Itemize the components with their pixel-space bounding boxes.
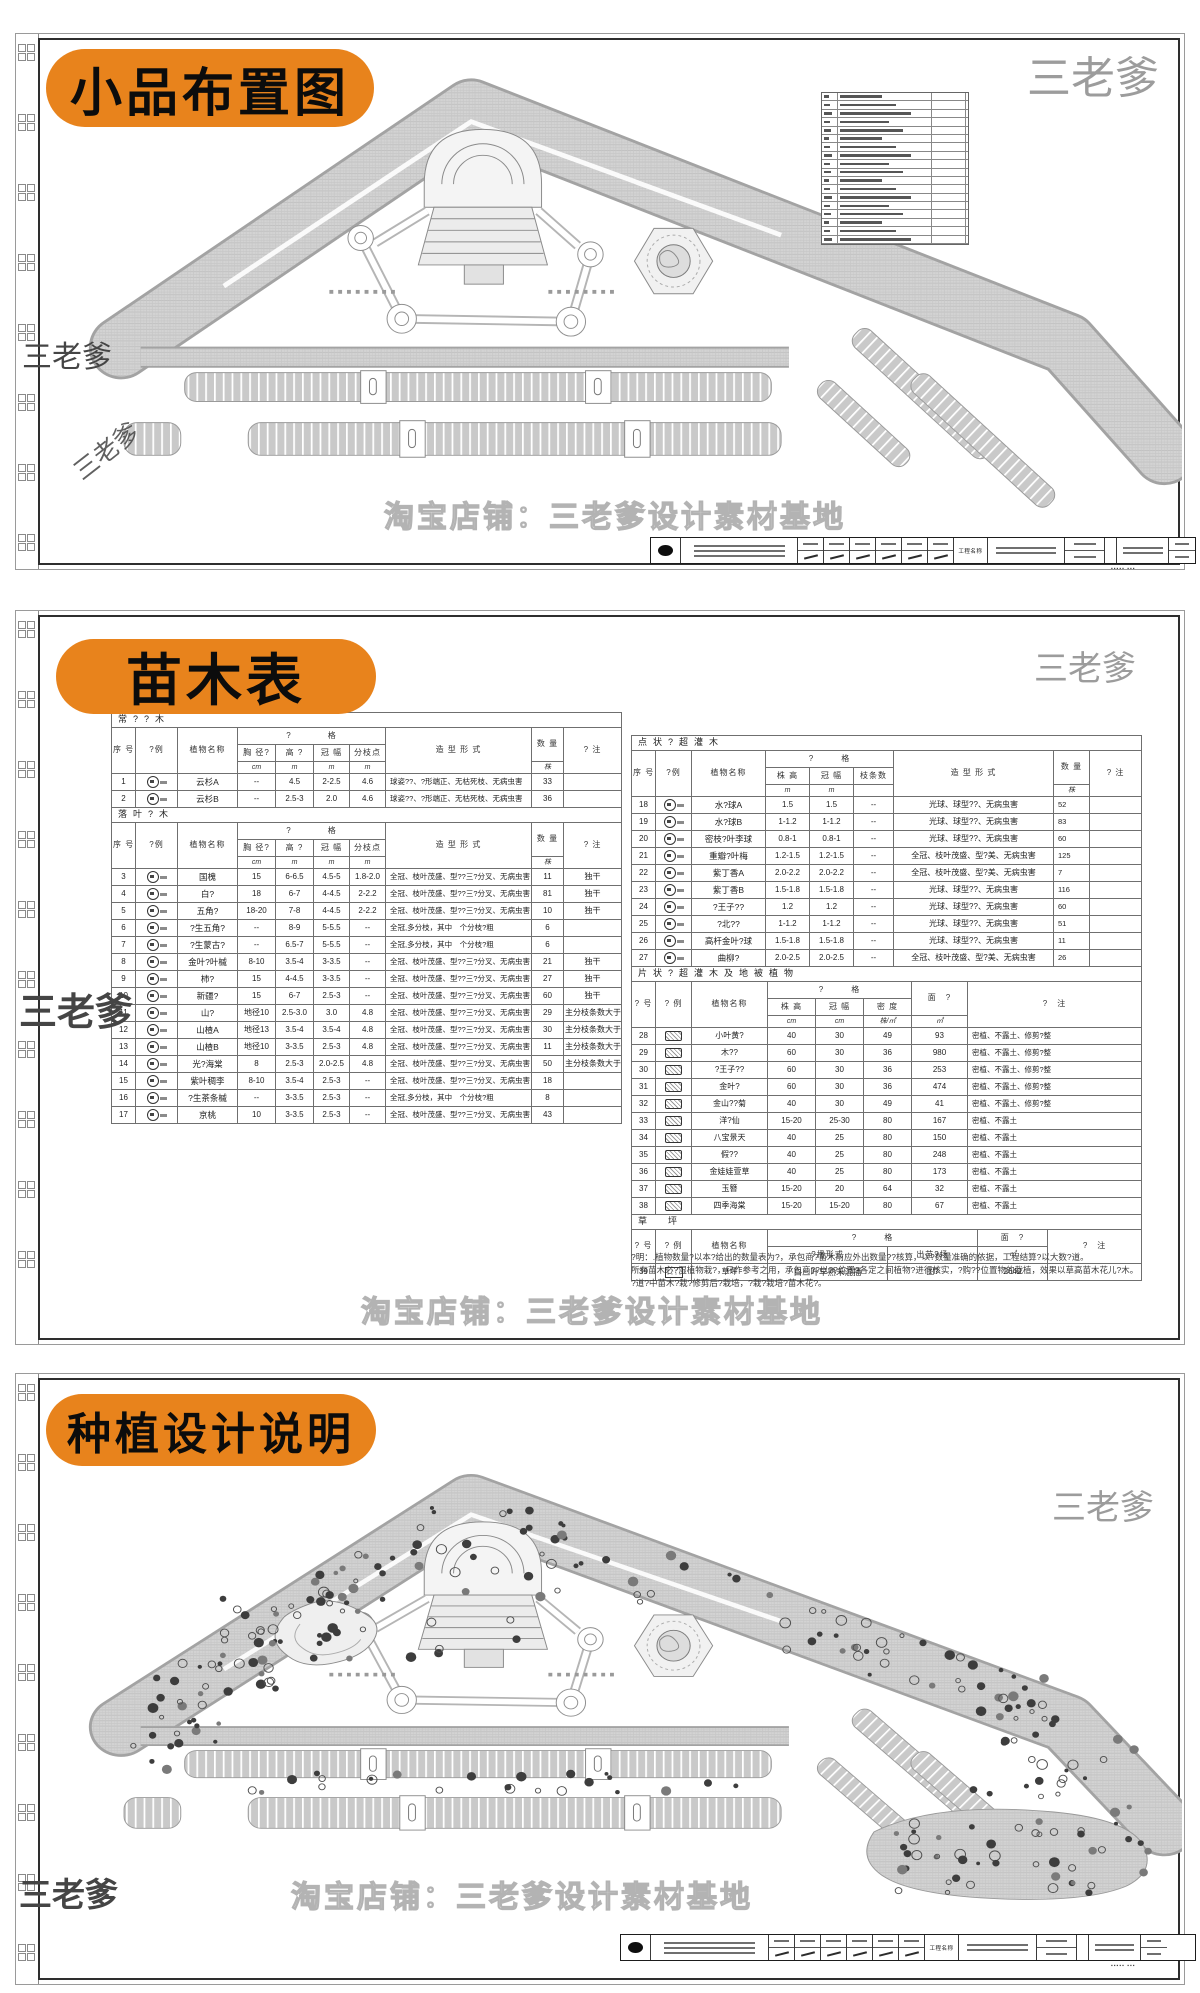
column-header: 造 型 形 式 (894, 751, 1054, 797)
project-info-cell (1117, 538, 1169, 563)
tree-symbol (566, 1770, 575, 1778)
blank-cell (1105, 538, 1117, 563)
brand-watermark: 三老爹 (1052, 1480, 1154, 1529)
table-cell: -- (854, 933, 894, 950)
table-cell: 2.0-2.5 (766, 950, 810, 967)
table-row: 8金叶?叶槭8-103.5-43-3.5--全冠、枝叶茂盛、型??三?分叉、无病… (112, 954, 622, 971)
table-row: 15紫叶稠李8-103.5-42.5-3--全冠、枝叶茂盛、型??三?分叉、无病… (112, 1073, 622, 1090)
tree-symbol (319, 1784, 325, 1790)
table-row: 13山楂B地径103-3.52.5-34.8全冠、枝叶茂盛、型??三?分叉、无病… (112, 1039, 622, 1056)
table-cell: 4-4.5 (276, 971, 314, 988)
table-row: 16?生茶条槭--3-3.52.5-3--全冠,多分枝，其中 个分枝?粗8 (112, 1090, 622, 1107)
margin-cell (18, 184, 26, 192)
table-cell: 21 (632, 848, 656, 865)
table-cell: 3.5-4 (276, 1022, 314, 1039)
tree-symbol (259, 1671, 265, 1676)
table-cell: 6 (112, 920, 136, 937)
tree-symbol (314, 1771, 320, 1777)
tree-symbol (333, 1571, 338, 1575)
table-cell: ?王子?? (692, 1062, 768, 1079)
column-header: 面 ? (978, 1230, 1048, 1247)
tree-symbol (1008, 1691, 1019, 1701)
margin-cell (18, 1190, 26, 1198)
table-cell: ?生蒙古? (178, 937, 238, 954)
legend-row (822, 219, 968, 227)
shop-watermark: 淘宝店铺：三老爹设计素材基地 (384, 492, 846, 536)
margin-cell (18, 123, 26, 131)
table-cell: 主分枝条数大于3 (564, 1039, 622, 1056)
brand-watermark: 三老爹 (1034, 641, 1136, 690)
section-title: 草 坪 (632, 1215, 1142, 1230)
margin-cell (27, 1813, 35, 1821)
table-cell: 4.8 (350, 1005, 386, 1022)
table-cell: 3.0 (314, 1005, 350, 1022)
tree-symbol (897, 1865, 907, 1875)
margin-cell (18, 700, 26, 708)
legend-cell (822, 227, 838, 234)
tree-symbol (996, 1713, 1004, 1720)
legend-cell (838, 118, 932, 125)
legend-cell (822, 160, 838, 167)
tree-symbol (992, 1860, 999, 1867)
nursery-table-section: 常??木序 号?例植物名称? 格造 型 形 式数 量? 注胸 径?高 ?冠 幅分… (111, 712, 622, 808)
table-cell: -- (350, 920, 386, 937)
table-cell: 3-3.5 (276, 1107, 314, 1124)
table-cell: 3-3.5 (276, 1039, 314, 1056)
project-info-cell (1089, 1935, 1141, 1960)
table-cell: -- (854, 814, 894, 831)
margin-cell (27, 630, 35, 638)
plant-symbol-icon (136, 1039, 178, 1056)
table-cell: 3 (112, 869, 136, 886)
legend-cell (822, 118, 838, 125)
table-cell (1090, 950, 1142, 967)
table-cell: 27 (632, 950, 656, 967)
table-cell: 全冠、枝叶茂盛、型??三?分叉、无病虫害 (386, 988, 532, 1005)
table-row: 1云杉A--4.52-2.54.6球姿??、?形端正、无枯死枝、无病虫害33 (112, 774, 622, 791)
margin-cell (18, 324, 26, 332)
column-header: ? 注 (564, 823, 622, 869)
margin-cell (18, 1454, 26, 1462)
legend-cell (932, 118, 966, 125)
margin-cell (27, 254, 35, 262)
legend-row (822, 93, 968, 101)
legend-cell (932, 227, 966, 234)
table-cell: 27 (532, 971, 564, 988)
table-cell: -- (238, 791, 276, 808)
legend-cell (822, 185, 838, 192)
table-cell: 6 (532, 920, 564, 937)
tree-symbol (1085, 1889, 1092, 1896)
table-cell: 2 (112, 791, 136, 808)
column-header: 株 (532, 857, 564, 869)
tree-symbol (432, 1510, 436, 1514)
table-cell: 3-3.5 (314, 971, 350, 988)
table-cell (1090, 797, 1142, 814)
legend-cell (838, 227, 932, 234)
table-cell: 80 (864, 1164, 912, 1181)
table-cell (564, 920, 622, 937)
tree-symbol (311, 1578, 320, 1586)
column-header: 数 量 (532, 728, 564, 762)
tree-symbol (315, 1571, 324, 1579)
column-header: m (350, 857, 386, 869)
table-cell: 15-20 (768, 1181, 816, 1198)
tree-symbol (374, 1563, 381, 1570)
table-cell: 36 (864, 1079, 912, 1096)
tree-symbol (393, 1771, 402, 1779)
table-cell: 67 (912, 1198, 968, 1215)
tree-symbol (1016, 1704, 1021, 1709)
legend-cell (932, 194, 966, 201)
table-cell: 15-20 (816, 1198, 864, 1215)
legend-cell (822, 93, 838, 100)
margin-cell (18, 1743, 26, 1751)
table-cell: 4.5-5 (314, 869, 350, 886)
tree-symbol (911, 1829, 916, 1834)
table-cell: 京桃 (178, 1107, 238, 1124)
table-cell: 密植、不露土 (968, 1164, 1142, 1181)
legend-row (822, 194, 968, 202)
table-row: 32金山??菊40304941密植、不露土、修剪?整 (632, 1096, 1142, 1113)
margin-cell (18, 1111, 26, 1119)
margin-cell (27, 1454, 35, 1462)
margin-cell (18, 53, 26, 61)
column-header: 造 型 形 式 (386, 823, 532, 869)
legend-row (822, 101, 968, 109)
table-cell: 18-20 (238, 903, 276, 920)
table-cell: 35 (632, 1147, 656, 1164)
tree-symbol (1127, 1805, 1132, 1810)
table-row: 33洋?仙15-2025-3080167密植、不露土 (632, 1113, 1142, 1130)
company-name-cell (651, 1935, 769, 1960)
margin-cell (27, 324, 35, 332)
table-row: 24?王子??1.21.2--光球、球型??、无病虫害60 (632, 899, 1142, 916)
margin-cell (27, 1384, 35, 1392)
table-cell: 253 (912, 1062, 968, 1079)
margin-cell (18, 621, 26, 629)
margin-cell (18, 1673, 26, 1681)
table-row: 34八宝景天402580150密植、不露土 (632, 1130, 1142, 1147)
note-line: ?明：.植物数量?以本?给出的数量表为?，承包商?苗木前应外出数量??核算，以?… (631, 1251, 1138, 1264)
margin-cell (18, 770, 26, 778)
tree-symbol (952, 1874, 960, 1882)
column-header: 枝条数 (854, 768, 894, 785)
margin-cell (27, 1111, 35, 1119)
legend-row (822, 152, 968, 160)
groundcover-swatch-icon (656, 1198, 692, 1215)
table-cell: -- (854, 831, 894, 848)
tree-symbol (936, 1835, 941, 1840)
table-cell: 173 (912, 1164, 968, 1181)
shop-watermark: 淘宝店铺：三老爹设计素材基地 (291, 1872, 753, 1916)
margin-cell (27, 263, 35, 271)
margin-cell (18, 901, 26, 909)
table-row: 29木??603036980密植、不露土、修剪?整 (632, 1045, 1142, 1062)
table-cell: 柿? (178, 971, 238, 988)
tree-symbol (986, 1839, 996, 1848)
table-cell: 1.2 (766, 899, 810, 916)
table-cell: 33 (632, 1113, 656, 1130)
table-cell: 22 (632, 865, 656, 882)
tree-symbol (187, 1720, 192, 1725)
tree-symbol (895, 1888, 902, 1894)
tree-symbol (1110, 1808, 1120, 1817)
plant-symbol-icon (656, 950, 692, 967)
column-header: 植物名称 (178, 728, 238, 774)
margin-cell (27, 193, 35, 201)
table-cell: 16 (112, 1090, 136, 1107)
table-cell: 金娃娃萱草 (692, 1164, 768, 1181)
table-cell: 4-4.5 (314, 886, 350, 903)
column-header: cm (816, 1016, 864, 1028)
groundcover-swatch-icon (656, 1130, 692, 1147)
table-cell: 5 (112, 903, 136, 920)
margin-cell (18, 114, 26, 122)
margin-cell (27, 1953, 35, 1961)
legend-cell (838, 194, 932, 201)
legend-row (822, 210, 968, 218)
table-cell: 43 (532, 1107, 564, 1124)
table-cell: 7 (1054, 865, 1090, 882)
tree-symbol (259, 1790, 264, 1795)
margin-cell (18, 1664, 26, 1672)
groundcover-swatch-icon (656, 1045, 692, 1062)
margin-cell (27, 691, 35, 699)
margin-cell (27, 1594, 35, 1602)
table-cell: 36 (864, 1045, 912, 1062)
table-cell: 密植、不露土、修剪?整 (968, 1079, 1142, 1096)
table-cell: 1.2 (810, 899, 854, 916)
table-cell: 全冠、枝叶茂盛、型??三?分叉、无病虫害 (386, 1073, 532, 1090)
table-cell: 33 (532, 774, 564, 791)
table-cell: 60 (532, 988, 564, 1005)
margin-cell (27, 831, 35, 839)
table-cell: 30 (816, 1028, 864, 1045)
table-cell: 洋?仙 (692, 1113, 768, 1130)
table-cell: 19 (632, 814, 656, 831)
margin-cell (27, 543, 35, 551)
tree-symbol (1051, 1872, 1060, 1880)
table-cell: 独干 (564, 869, 622, 886)
tree-symbol (512, 1635, 520, 1643)
margin-cell (18, 691, 26, 699)
column-header: 分枝点 (350, 745, 386, 762)
tree-symbol (1057, 1780, 1065, 1788)
table-cell: 31 (632, 1079, 656, 1096)
table-cell: 全冠、枝叶茂盛、型??三?分叉、无病虫害 (386, 971, 532, 988)
tree-symbol (338, 1593, 347, 1601)
legend-cell (838, 127, 932, 134)
margin-cell (18, 44, 26, 52)
margin-cell (18, 1384, 26, 1392)
tree-symbol (194, 1723, 199, 1728)
legend-cell (932, 177, 966, 184)
tree-symbol (733, 1784, 738, 1789)
tree-symbol (269, 1640, 276, 1647)
groundcover-swatch-icon (656, 1164, 692, 1181)
margin-cell (27, 1181, 35, 1189)
table-cell: 23 (632, 882, 656, 899)
column-header: ?例 (136, 728, 178, 774)
table-cell: 30 (816, 1079, 864, 1096)
plant-symbol-icon (136, 774, 178, 791)
table-cell: 980 (912, 1045, 968, 1062)
tree-symbol (1005, 1704, 1013, 1712)
tree-symbol (390, 1556, 395, 1561)
table-cell: 20 (816, 1181, 864, 1198)
table-row: 25?北??1-1.21-1.2--光球、球型??、无病虫害51 (632, 916, 1142, 933)
table-cell: 全冠、枝叶茂盛、型??三?分叉、无病虫害 (386, 1056, 532, 1073)
signature-cell (821, 1935, 847, 1960)
table-cell: 1-1.2 (766, 916, 810, 933)
table-cell: -- (238, 937, 276, 954)
table-cell: 地径13 (238, 1022, 276, 1039)
margin-cell (27, 464, 35, 472)
tree-symbol (149, 1732, 156, 1739)
column-header: 冠 幅 (810, 768, 854, 785)
table-row: 6?生五角?--8-95-5.5--全冠,多分枝，其中 个分枝?粗6 (112, 920, 622, 937)
table-cell (1090, 882, 1142, 899)
table-cell: 2-2.2 (350, 886, 386, 903)
plant-symbol-icon (136, 1090, 178, 1107)
column-header: 植物名称 (692, 982, 768, 1028)
table-cell: 4.6 (350, 774, 386, 791)
plant-symbol-icon (136, 1022, 178, 1039)
margin-cell (27, 114, 35, 122)
tree-symbol (213, 1740, 217, 1744)
section-title: 片状?超灌木及地被植物 (632, 967, 1142, 982)
plant-symbol-icon (136, 971, 178, 988)
tree-symbol (406, 1652, 417, 1662)
plant-symbol-icon (136, 937, 178, 954)
legend-row (822, 127, 968, 135)
table-cell: 独干 (564, 886, 622, 903)
tree-symbol (355, 1609, 361, 1614)
legend-cell (838, 143, 932, 150)
column-header: cm (238, 762, 276, 774)
table-row: 37玉簪15-20206432密植、不露土 (632, 1181, 1142, 1198)
tree-symbol (1077, 1830, 1085, 1837)
plant-symbol-icon (136, 954, 178, 971)
table-row: 9柿?154-4.53-3.5--全冠、枝叶茂盛、型??三?分叉、无病虫害27独… (112, 971, 622, 988)
table-cell (564, 937, 622, 954)
table-cell: 34 (632, 1130, 656, 1147)
table-cell: 60 (768, 1079, 816, 1096)
tree-symbol (380, 1597, 385, 1602)
table-cell: -- (854, 916, 894, 933)
legend-cell (932, 127, 966, 134)
table-cell: 全冠、枝叶茂盛、型??三?分叉、无病虫害 (386, 954, 532, 971)
table-cell: 25 (632, 916, 656, 933)
plant-symbol-icon (136, 1056, 178, 1073)
table-cell (1090, 814, 1142, 831)
table-cell: 1-1.2 (810, 814, 854, 831)
table-cell: 8-9 (276, 920, 314, 937)
table-row: 18水?球A1.51.5--光球、球型??、无病虫害52 (632, 797, 1142, 814)
tree-symbol (306, 1596, 314, 1603)
legend-row (822, 202, 968, 210)
tree-symbol (310, 1655, 318, 1662)
margin-cell (27, 700, 35, 708)
tree-symbol (167, 1743, 174, 1749)
table-cell: 24 (632, 899, 656, 916)
sheet-layout-plan: 小品布置图 三老爹 三老爹 三老爹 淘宝店铺：三老爹设计素材基地 工程名称 ▪▪… (15, 33, 1185, 570)
table-cell: 4.8 (350, 1039, 386, 1056)
legend-cell (838, 210, 932, 217)
table-cell: 2-2.2 (350, 903, 386, 920)
table-row: 19水?球B1-1.21-1.2--光球、球型??、无病虫害83 (632, 814, 1142, 831)
table-cell: 93 (912, 1028, 968, 1045)
table-cell: 4.5 (276, 774, 314, 791)
signature-cell (798, 538, 824, 563)
table-cell: 新疆? (178, 988, 238, 1005)
tree-symbol (573, 1564, 578, 1569)
column-header: ? 格 (238, 823, 386, 840)
table-cell: 25-30 (816, 1113, 864, 1130)
table-cell: 全冠,多分枝，其中 个分枝?粗 (386, 920, 532, 937)
tree-symbol (223, 1687, 232, 1696)
table-cell: 2.5-3 (314, 1107, 350, 1124)
table-row: 28小叶黄?40304993密植、不露土、修剪?整 (632, 1028, 1142, 1045)
table-cell: 1.5-1.8 (810, 882, 854, 899)
margin-cell (27, 770, 35, 778)
tree-symbol (321, 1632, 331, 1642)
table-cell: 6-7 (276, 886, 314, 903)
tree-symbol (615, 1790, 620, 1794)
tree-symbol (470, 1554, 477, 1560)
table-cell: 28 (632, 1028, 656, 1045)
tree-symbol (969, 1824, 975, 1829)
schedule-notes: ?明：.植物数量?以本?给出的数量表为?，承包商?苗木前应外出数量??核算，以?… (631, 1251, 1138, 1289)
margin-cell (27, 621, 35, 629)
table-cell (1090, 916, 1142, 933)
column-header: 株 高 (768, 999, 816, 1016)
legend-cell (822, 202, 838, 209)
table-cell: 1.5-1.8 (766, 882, 810, 899)
tree-symbol (1024, 1784, 1029, 1789)
table-cell: 1 (112, 774, 136, 791)
groundcover-swatch-icon (656, 1062, 692, 1079)
margin-cell (27, 1533, 35, 1541)
tree-symbol (561, 1524, 565, 1528)
table-cell: 4.8 (350, 1056, 386, 1073)
table-cell: 8 (532, 1090, 564, 1107)
tree-symbol (1139, 1868, 1148, 1876)
table-cell: ?王子?? (692, 899, 766, 916)
legend-cell (932, 160, 966, 167)
legend-cell (932, 185, 966, 192)
tree-symbol (1125, 1836, 1132, 1842)
tree-symbol (248, 1787, 256, 1794)
table-cell: -- (350, 1073, 386, 1090)
table-cell: 主分枝条数大于3 (564, 1005, 622, 1022)
drawing-number-cell (1065, 538, 1105, 563)
margin-cell (18, 394, 26, 402)
table-cell: 云杉A (178, 774, 238, 791)
table-cell: 36 (864, 1062, 912, 1079)
margin-cell (18, 1393, 26, 1401)
margin-cell (18, 464, 26, 472)
nursery-table-section: 点状?超灌木序 号?例植物名称? 格造 型 形 式数 量? 注株 高冠 幅枝条数… (631, 735, 1142, 967)
plan-legend-table (821, 92, 969, 245)
legend-cell (932, 143, 966, 150)
table-cell: 25 (816, 1130, 864, 1147)
table-cell: 30 (816, 1062, 864, 1079)
tree-symbol (1032, 1731, 1039, 1737)
table-cell: 1-1.2 (810, 916, 854, 933)
brand-watermark: 三老爹 (1027, 42, 1159, 106)
